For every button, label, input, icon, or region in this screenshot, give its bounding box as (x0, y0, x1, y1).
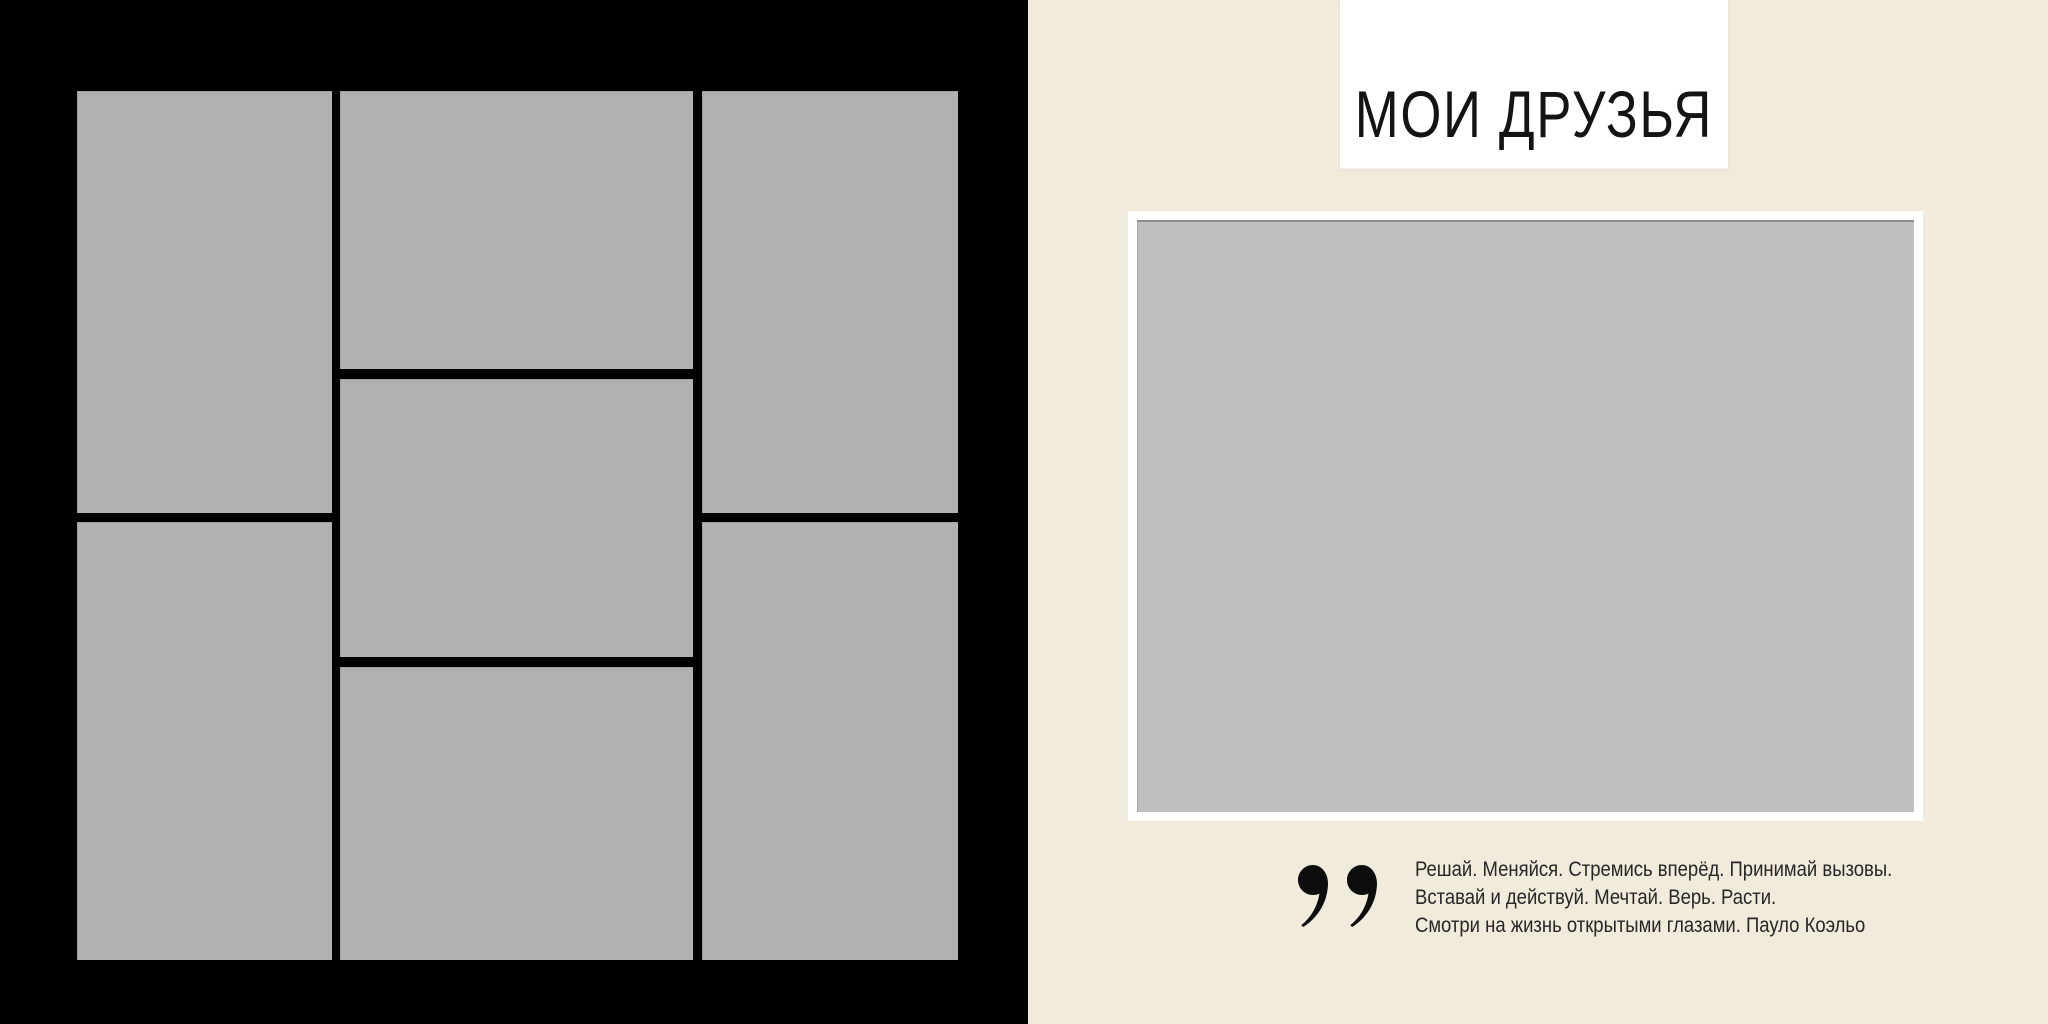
page-title: МОИ ДРУЗЬЯ (1355, 81, 1713, 169)
right-page: МОИ ДРУЗЬЯ Решай. Меняйся. Стремись впер… (1028, 0, 2048, 1024)
photo-placeholder[interactable] (702, 91, 958, 513)
photobook-spread: МОИ ДРУЗЬЯ Решай. Меняйся. Стремись впер… (0, 0, 2048, 1024)
photo-placeholder[interactable] (340, 379, 693, 657)
photo-placeholder[interactable] (77, 91, 332, 513)
photo-placeholder[interactable] (702, 522, 958, 960)
photo-placeholder[interactable] (77, 522, 332, 960)
photo-placeholder (1137, 220, 1914, 812)
quote-text-block[interactable]: Решай. Меняйся. Стремись вперёд. Принима… (1415, 856, 1892, 940)
framed-photo-placeholder[interactable] (1128, 211, 1923, 821)
quote-line: Вставай и действуй. Мечтай. Верь. Расти. (1415, 884, 1892, 912)
photo-placeholder[interactable] (340, 667, 693, 960)
closing-double-quote-icon (1298, 865, 1377, 927)
photo-placeholder[interactable] (340, 91, 693, 369)
quote-line: Смотри на жизнь открытыми глазами. Пауло… (1415, 912, 1892, 940)
left-page-collage (0, 0, 1028, 1024)
title-plate[interactable]: МОИ ДРУЗЬЯ (1340, 0, 1728, 169)
quote-line: Решай. Меняйся. Стремись вперёд. Принима… (1415, 856, 1892, 884)
